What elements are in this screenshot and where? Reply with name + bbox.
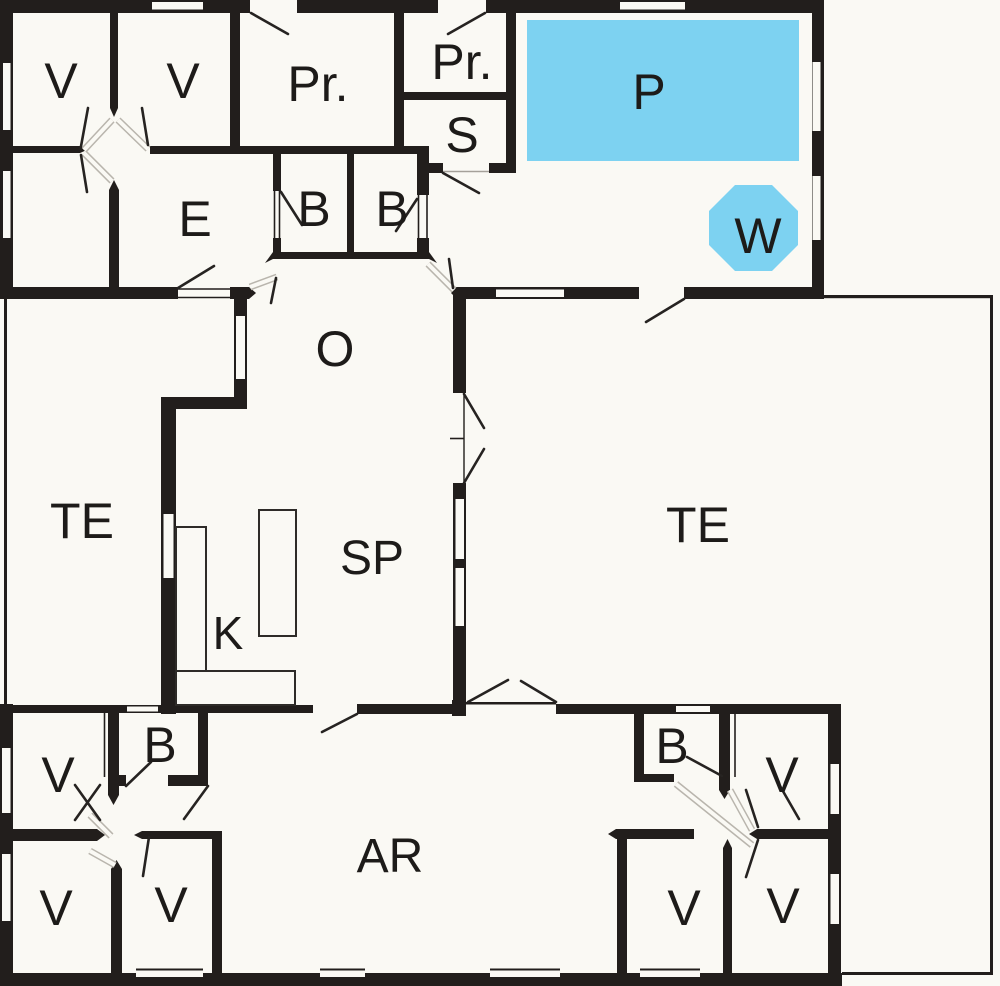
svg-text:Pr.: Pr. — [287, 56, 348, 112]
svg-text:S: S — [445, 107, 478, 163]
svg-text:E: E — [178, 191, 211, 247]
svg-text:Pr.: Pr. — [431, 34, 492, 90]
svg-text:V: V — [44, 53, 78, 109]
svg-text:O: O — [316, 321, 355, 377]
svg-text:V: V — [166, 53, 200, 109]
svg-text:W: W — [734, 208, 782, 264]
svg-text:V: V — [765, 747, 799, 803]
svg-text:B: B — [375, 181, 408, 237]
svg-text:V: V — [39, 880, 73, 936]
svg-text:V: V — [41, 747, 75, 803]
svg-text:AR: AR — [357, 830, 424, 883]
svg-text:K: K — [213, 607, 244, 659]
svg-text:V: V — [154, 877, 188, 933]
svg-text:SP: SP — [340, 532, 404, 585]
svg-text:P: P — [632, 64, 665, 120]
svg-text:TE: TE — [666, 497, 730, 553]
svg-text:B: B — [297, 181, 330, 237]
svg-text:B: B — [655, 718, 688, 774]
svg-text:B: B — [143, 717, 176, 773]
svg-text:V: V — [766, 878, 800, 934]
svg-text:TE: TE — [50, 493, 114, 549]
svg-text:V: V — [667, 880, 701, 936]
